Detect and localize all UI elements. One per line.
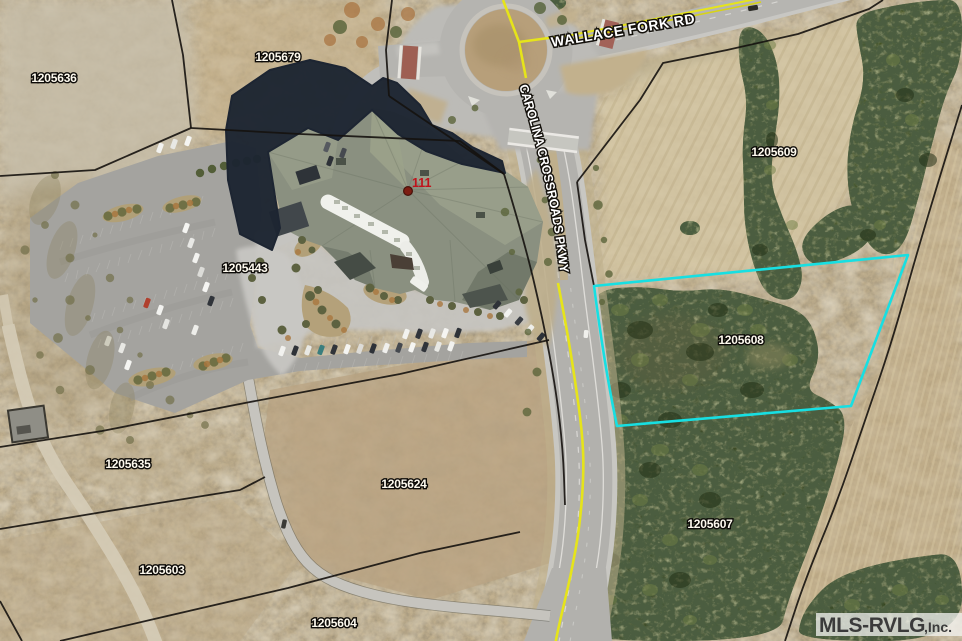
svg-text:1205679: 1205679: [255, 50, 301, 64]
svg-text:111: 111: [412, 176, 432, 190]
svg-text:1205608: 1205608: [718, 333, 764, 347]
svg-text:1205604: 1205604: [311, 616, 357, 630]
svg-text:MLS-RVLG: MLS-RVLG: [819, 614, 925, 637]
svg-text:,Inc.: ,Inc.: [924, 619, 952, 635]
svg-text:1205607: 1205607: [687, 517, 733, 531]
svg-text:1205603: 1205603: [139, 563, 185, 577]
svg-text:1205443: 1205443: [222, 261, 268, 275]
svg-text:1205624: 1205624: [381, 477, 427, 491]
svg-text:1205636: 1205636: [31, 71, 77, 85]
svg-text:1205635: 1205635: [105, 457, 151, 471]
svg-text:1205609: 1205609: [751, 145, 797, 159]
